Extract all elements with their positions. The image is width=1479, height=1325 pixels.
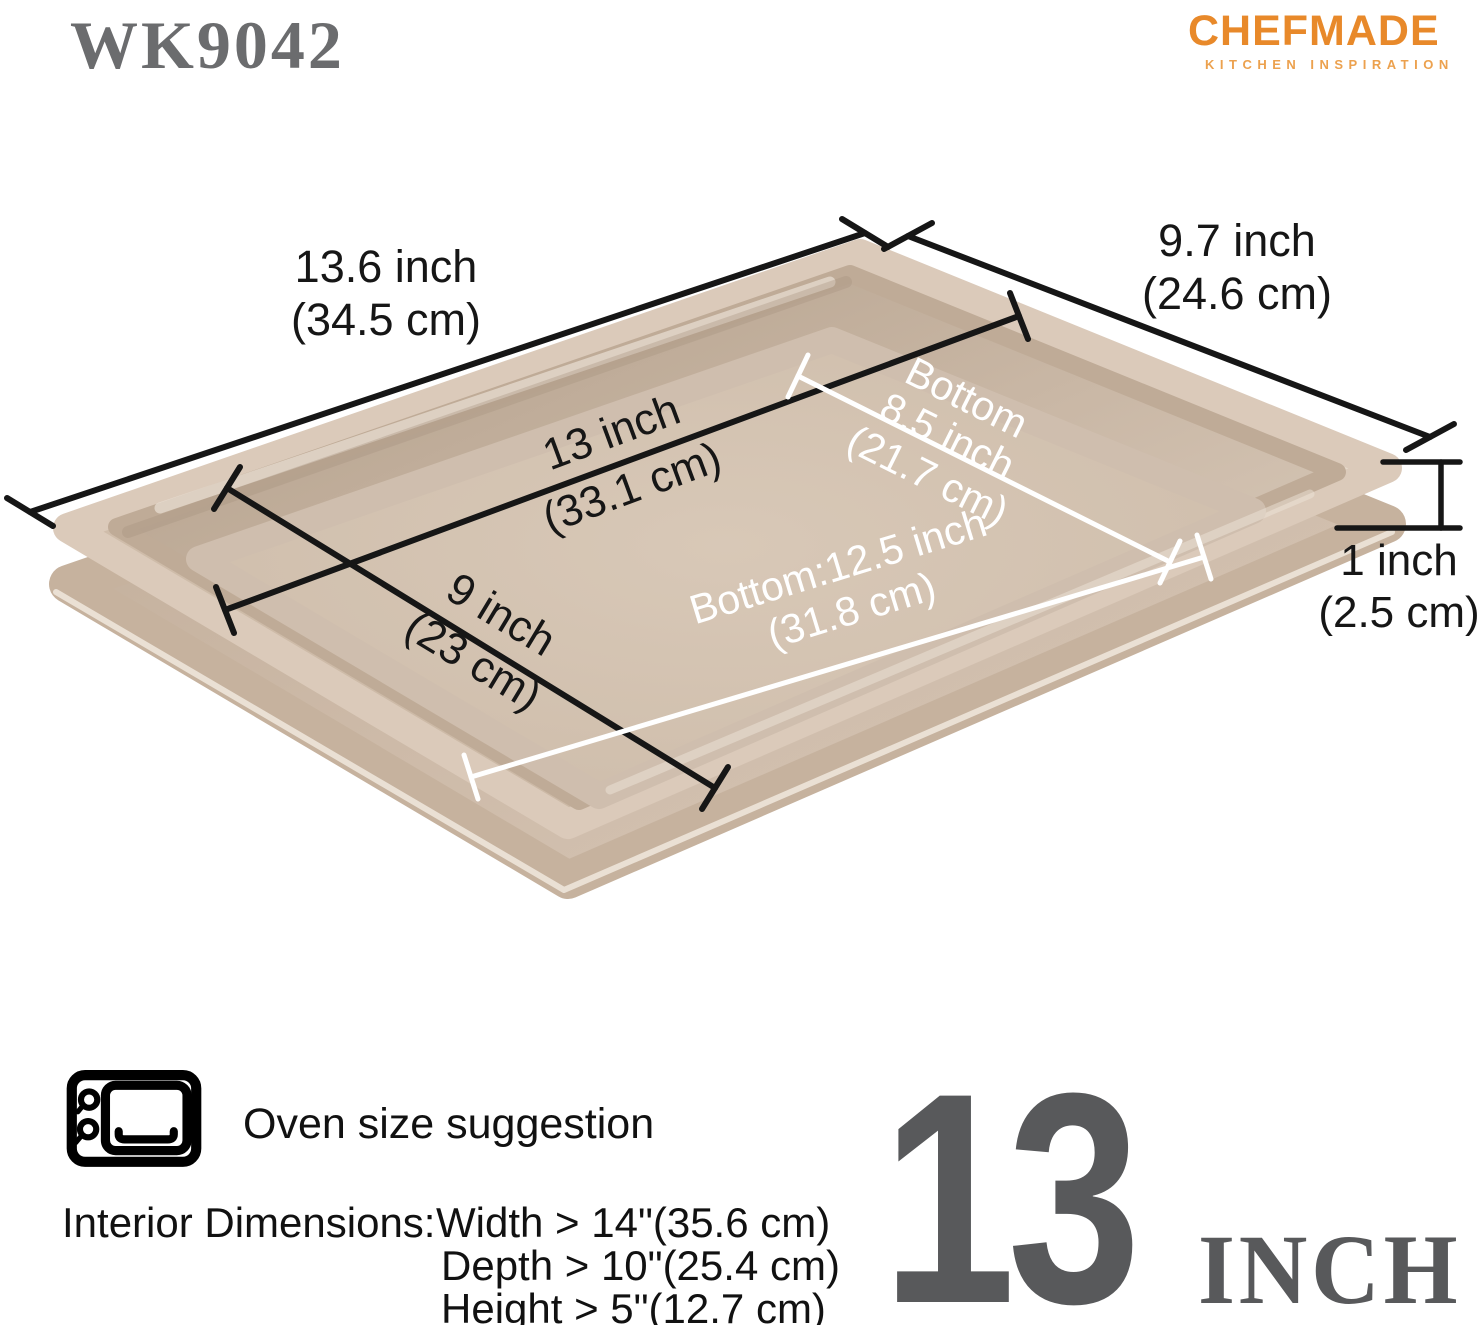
label-height: 1 inch (2.5 cm)	[1318, 535, 1479, 639]
pan-body	[56, 254, 1392, 890]
interior-dimension-depth: Depth > 10"(25.4 cm)	[441, 1242, 840, 1290]
interior-dimension-height: Height > 5"(12.7 cm)	[441, 1285, 826, 1325]
interior-dimension-width: Width > 14"(35.6 cm)	[436, 1199, 830, 1247]
size-callout-unit: INCH	[1198, 1222, 1461, 1317]
overall-length-cm: (34.5 cm)	[291, 293, 481, 346]
interior-dimensions-title: Interior Dimensions:	[62, 1199, 435, 1247]
height-cm: (2.5 cm)	[1318, 587, 1479, 639]
product-dimension-diagram: WK9042 CHEFMADE KITCHEN INSPIRATION	[0, 0, 1479, 1325]
oven-icon	[64, 1069, 204, 1171]
overall-width-cm: (24.6 cm)	[1142, 267, 1332, 320]
height-inch: 1 inch	[1318, 535, 1479, 587]
overall-length-inch: 13.6 inch	[291, 240, 481, 293]
overall-width-inch: 9.7 inch	[1142, 214, 1332, 267]
oven-size-suggestion-label: Oven size suggestion	[243, 1100, 654, 1149]
label-overall-width: 9.7 inch (24.6 cm)	[1142, 214, 1332, 320]
label-overall-length: 13.6 inch (34.5 cm)	[291, 240, 481, 346]
size-callout-number: 13	[882, 1078, 1133, 1318]
